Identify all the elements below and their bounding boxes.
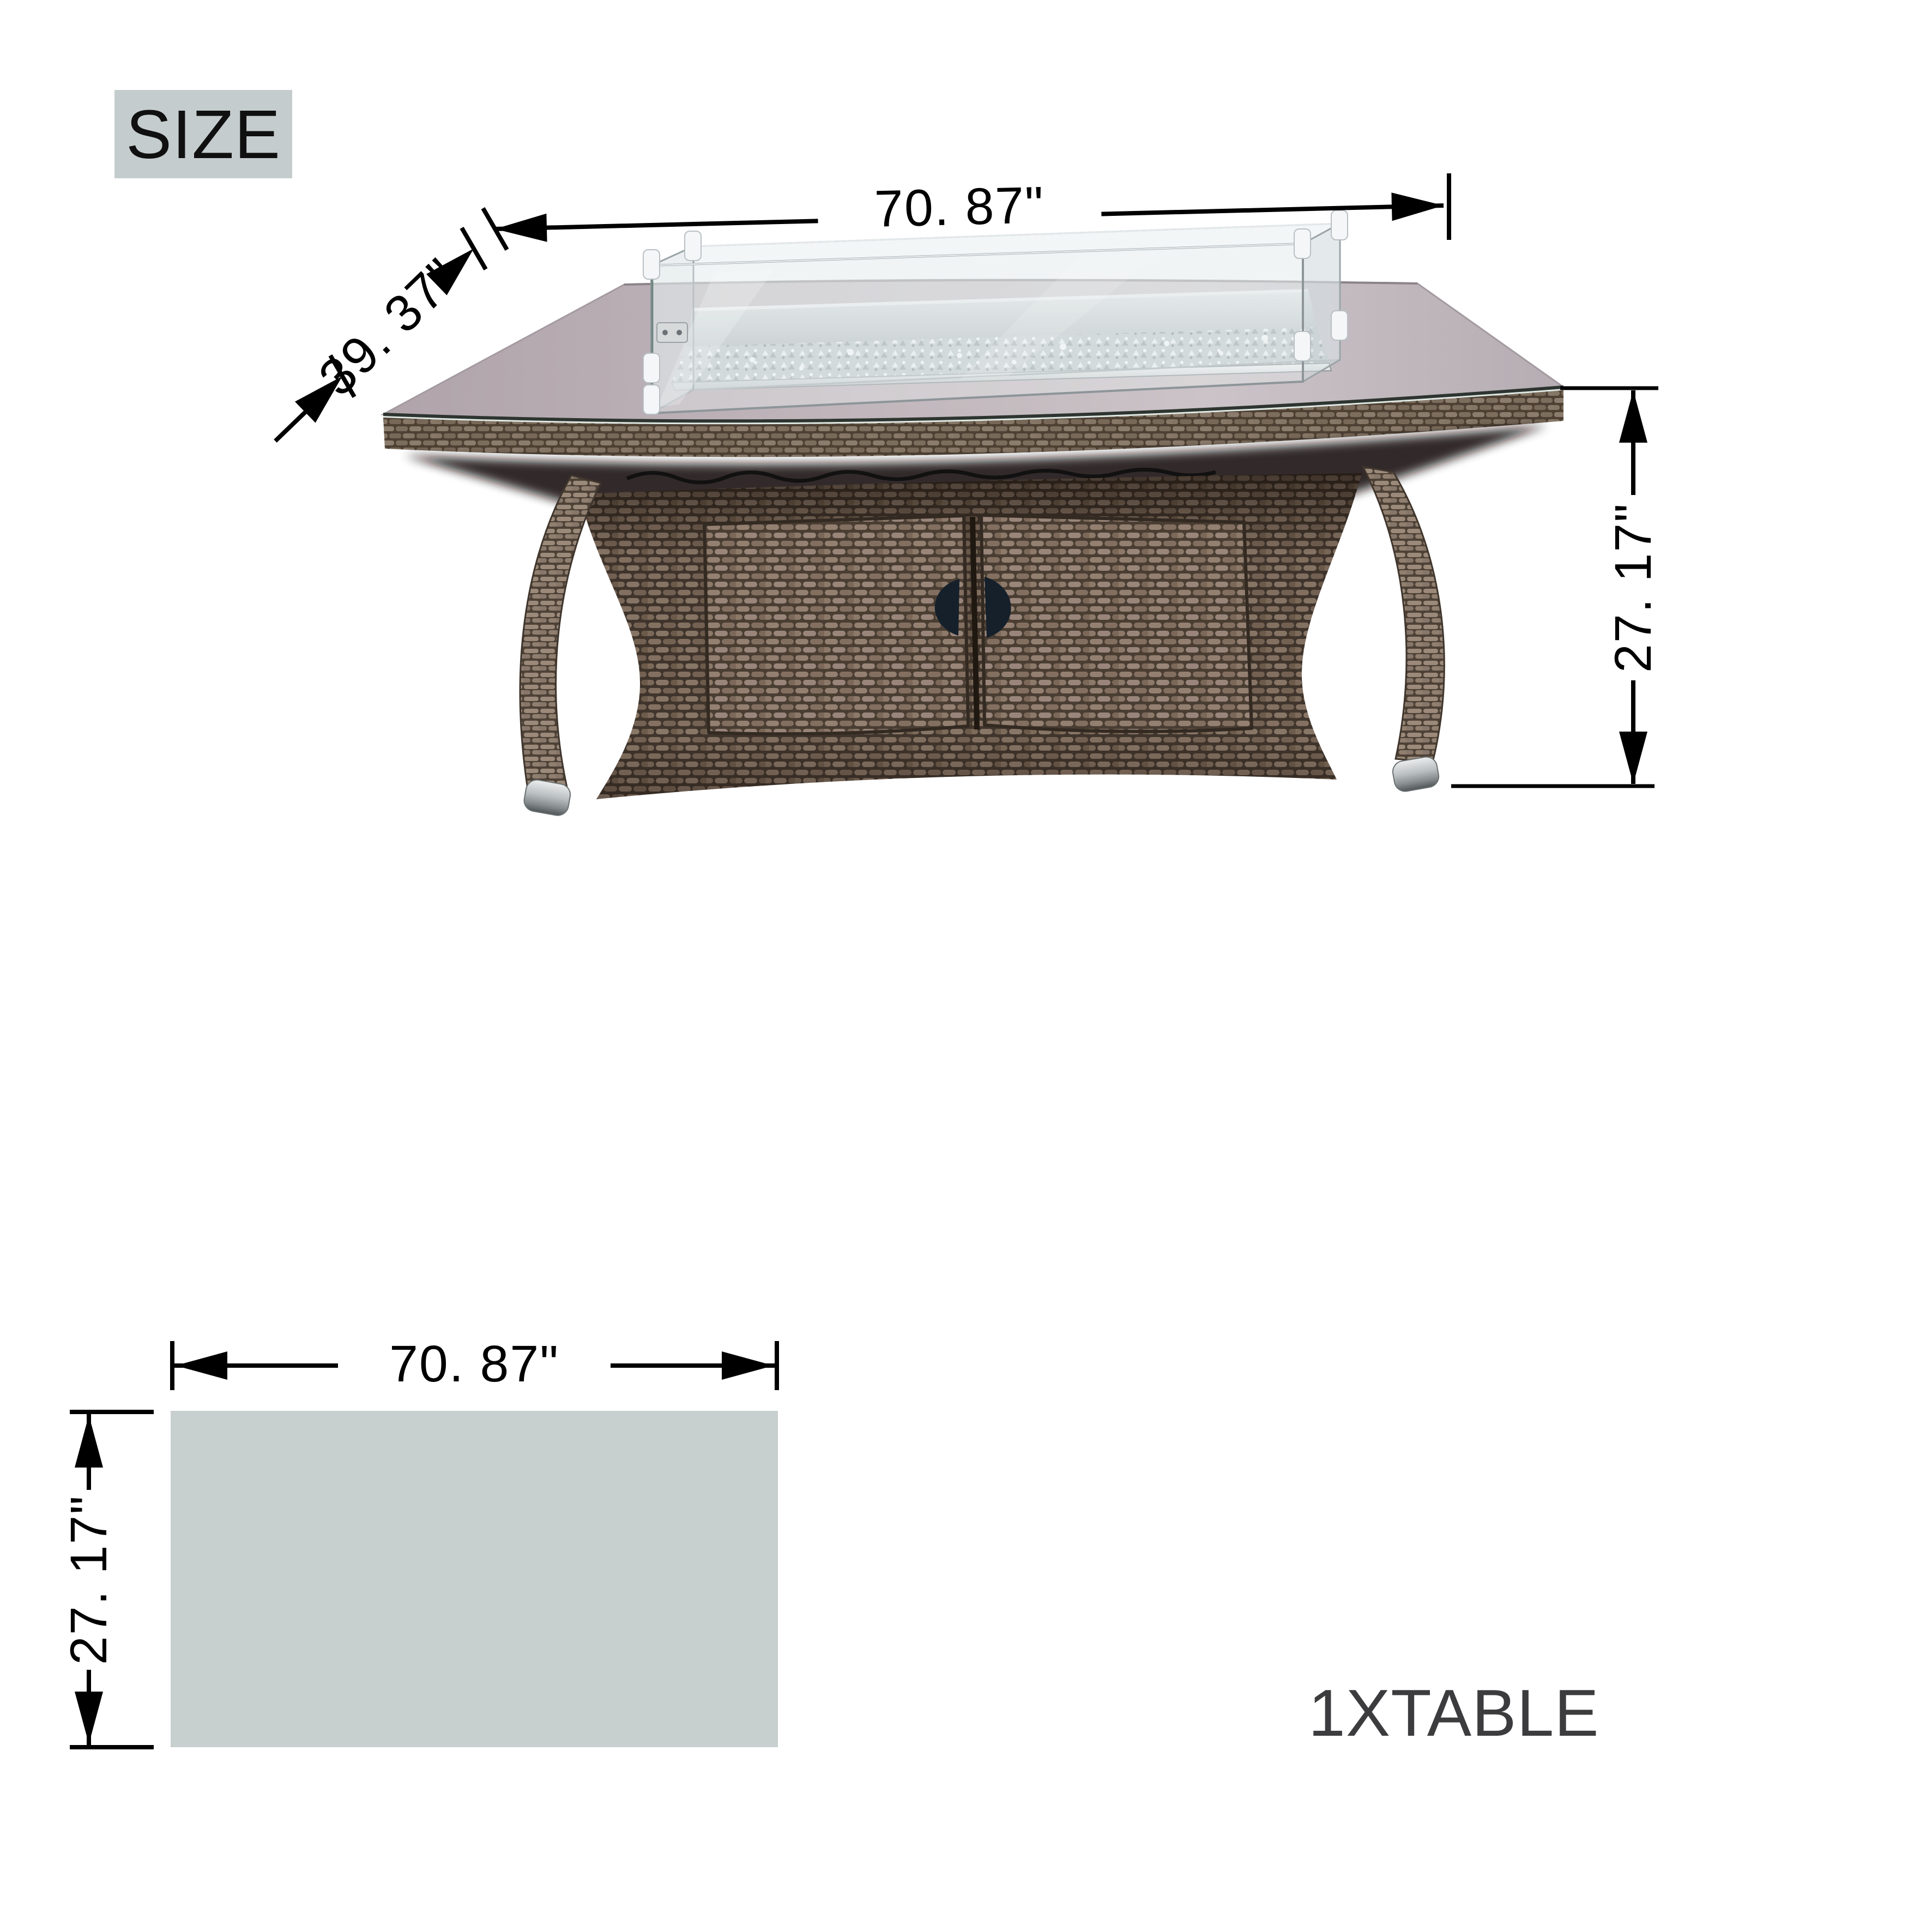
leg-foot-cap-right <box>1391 755 1440 793</box>
table-leg-right <box>1363 467 1444 762</box>
glass-wind-guard <box>643 210 1348 414</box>
front-view-illustration <box>383 210 1563 817</box>
plan-width-label: 70. 87" <box>389 1335 559 1393</box>
guard-hinge-bracket <box>657 323 687 342</box>
plan-height-label: 27. 17" <box>60 1495 118 1665</box>
plan-height-arrow-top <box>75 1415 103 1468</box>
cabinet-door-left <box>704 516 968 734</box>
height-arrow-bottom <box>1619 732 1647 784</box>
plan-width-arrow-left <box>176 1351 227 1380</box>
width-arrow-left <box>495 214 547 242</box>
plan-width-arrow-right <box>722 1351 774 1380</box>
height-arrow-top <box>1619 390 1647 443</box>
cabinet-door-right <box>981 515 1252 732</box>
height-dim-label: 27. 17" <box>1604 503 1662 673</box>
width-arrow-right <box>1391 192 1444 221</box>
plan-view: 70. 87" 27. 17" <box>57 1333 778 1747</box>
quantity-label: 1XTABLE <box>1308 1675 1635 1751</box>
product-dimension-sheet: SIZE <box>0 0 1932 1932</box>
plan-rect <box>171 1411 778 1747</box>
diagram-canvas: 70. 87" 39. 37" 27. 17" 70. 87" <box>0 0 1932 1932</box>
plan-height-arrow-bottom <box>75 1692 103 1744</box>
width-dim-label: 70. 87" <box>874 176 1045 238</box>
depth-dim-outer-shaft <box>275 412 305 441</box>
